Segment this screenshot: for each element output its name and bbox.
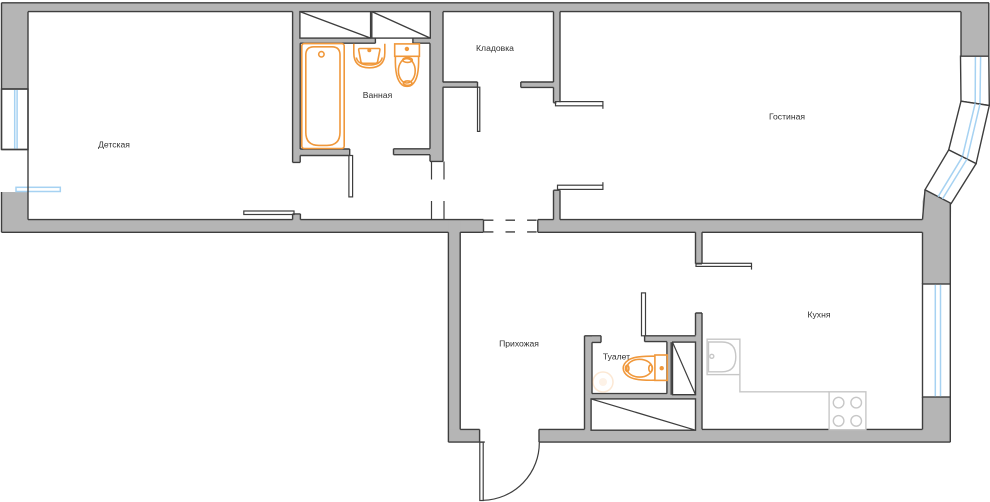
svg-text:Ванная: Ванная	[363, 90, 393, 100]
svg-text:Гостиная: Гостиная	[769, 112, 805, 122]
svg-text:Кладовка: Кладовка	[476, 43, 514, 53]
svg-text:Прихожая: Прихожая	[499, 338, 539, 348]
svg-text:Кухня: Кухня	[808, 309, 831, 319]
svg-text:Детская: Детская	[98, 139, 130, 149]
svg-text:Туалет: Туалет	[603, 351, 630, 361]
